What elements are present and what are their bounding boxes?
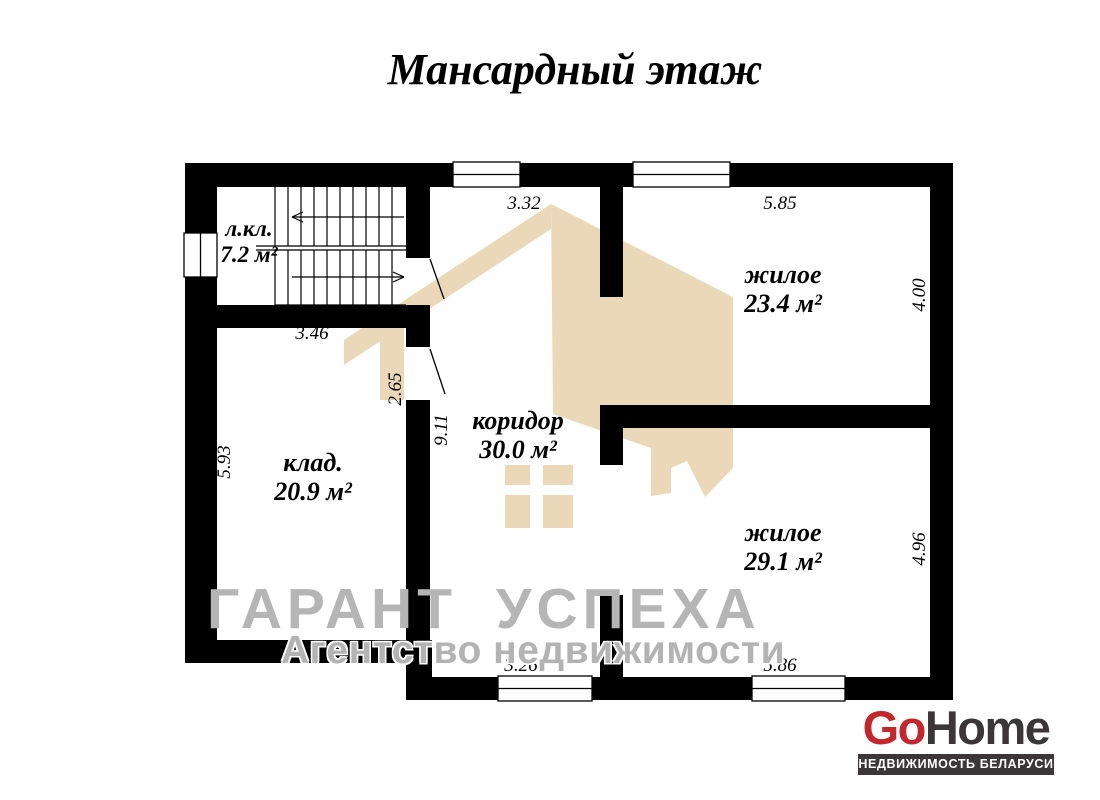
house-roof-left xyxy=(344,204,551,365)
gohome-wordmark: GoHome xyxy=(863,701,1050,754)
house-window-pane xyxy=(543,495,573,528)
gohome-logo: GoHome НЕДВИЖИМОСТЬ БЕЛАРУСИ xyxy=(858,704,1054,775)
house-window-pane xyxy=(505,465,530,485)
watermark-house-icon xyxy=(0,0,1100,800)
house-body xyxy=(551,204,733,497)
watermark-agency-tagline: Агентство недвижимости xyxy=(281,629,785,673)
house-window-pane xyxy=(505,495,530,528)
logo-tagline-bar: НЕДВИЖИМОСТЬ БЕЛАРУСИ xyxy=(858,754,1054,775)
logo-home: Home xyxy=(925,701,1050,754)
logo-go: Go xyxy=(863,701,925,754)
house-window-pane xyxy=(543,465,573,485)
floorplan-canvas: Мансардный этаж xyxy=(0,0,1100,800)
house-left-stub xyxy=(380,318,404,400)
